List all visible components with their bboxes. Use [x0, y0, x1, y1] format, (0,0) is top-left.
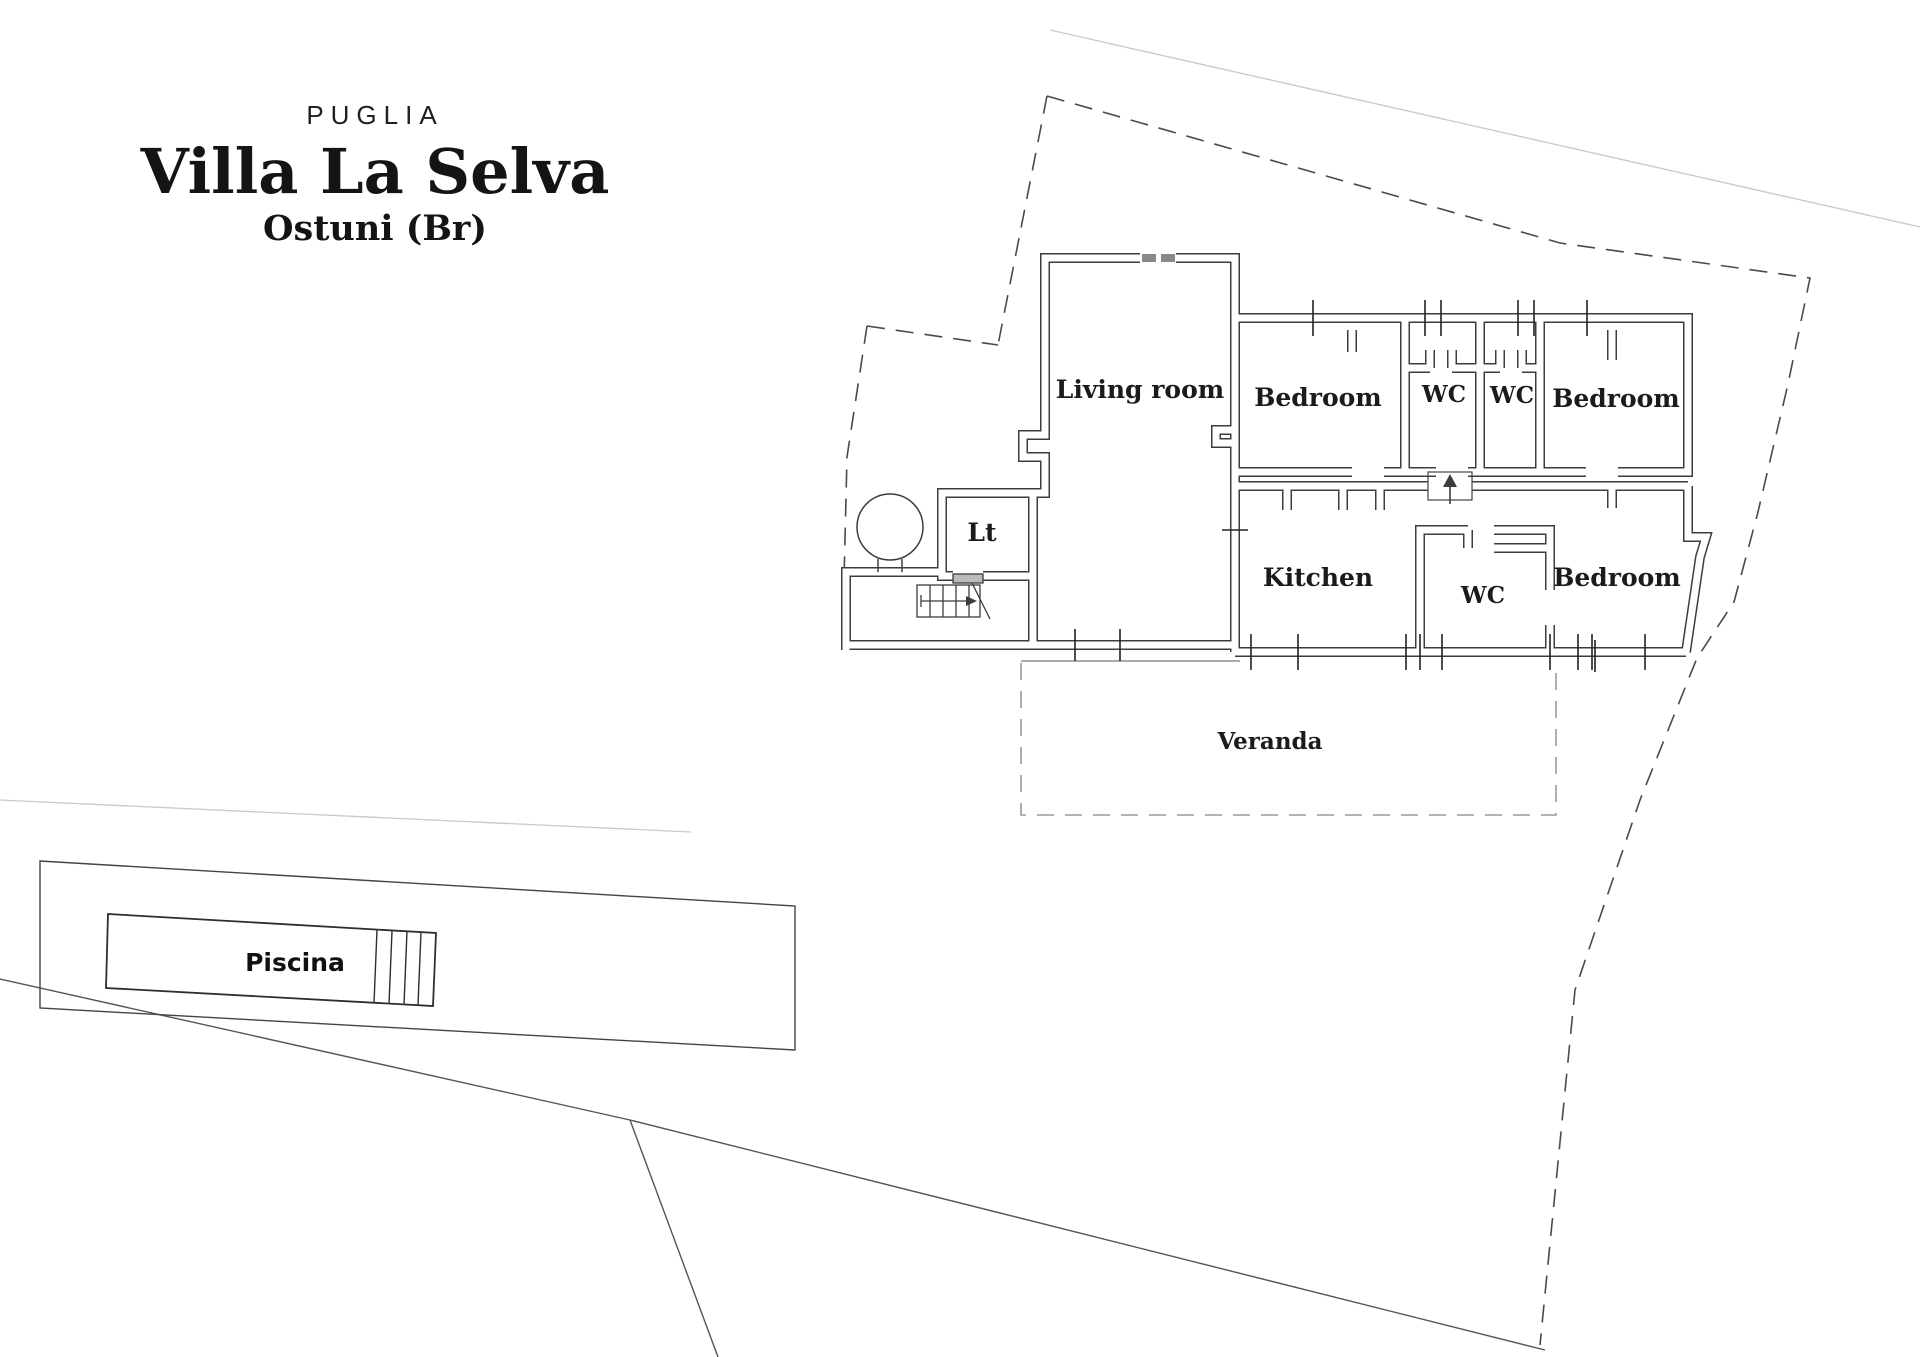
floor-plan-page: PUGLIA Villa La Selva Ostuni (Br) [0, 0, 1920, 1357]
room-label-kitchen: Kitchen [1263, 563, 1373, 592]
room-label-veranda: Veranda [1216, 728, 1322, 755]
pool-label: Piscina [245, 948, 345, 977]
room-label-bedroom-3: Bedroom [1553, 563, 1681, 592]
room-label-living-room: Living room [1056, 375, 1224, 404]
floor-plan-svg: Living room Bedroom WC WC Bedroom Lt Kit… [0, 0, 1920, 1357]
room-label-lt: Lt [967, 518, 997, 547]
door-marks [1142, 254, 1175, 262]
pool-steps [374, 930, 421, 1005]
room-label-bedroom-2: Bedroom [1552, 384, 1680, 413]
property-boundary-dashed [844, 96, 1810, 1345]
stairs-arrow-head [966, 596, 977, 606]
room-label-wc-1: WC [1421, 381, 1466, 408]
door-sill [953, 574, 983, 583]
room-label-wc-3: WC [1460, 582, 1505, 609]
room-label-bedroom-1: Bedroom [1254, 383, 1382, 412]
pool-deck [40, 861, 795, 1050]
plot-boundary-solid [0, 979, 1545, 1357]
tree-circle [857, 494, 923, 572]
faint-survey-lines [0, 30, 1920, 832]
room-label-wc-2: WC [1489, 382, 1534, 409]
building-walls-core [846, 258, 1706, 652]
stairs [917, 583, 990, 619]
